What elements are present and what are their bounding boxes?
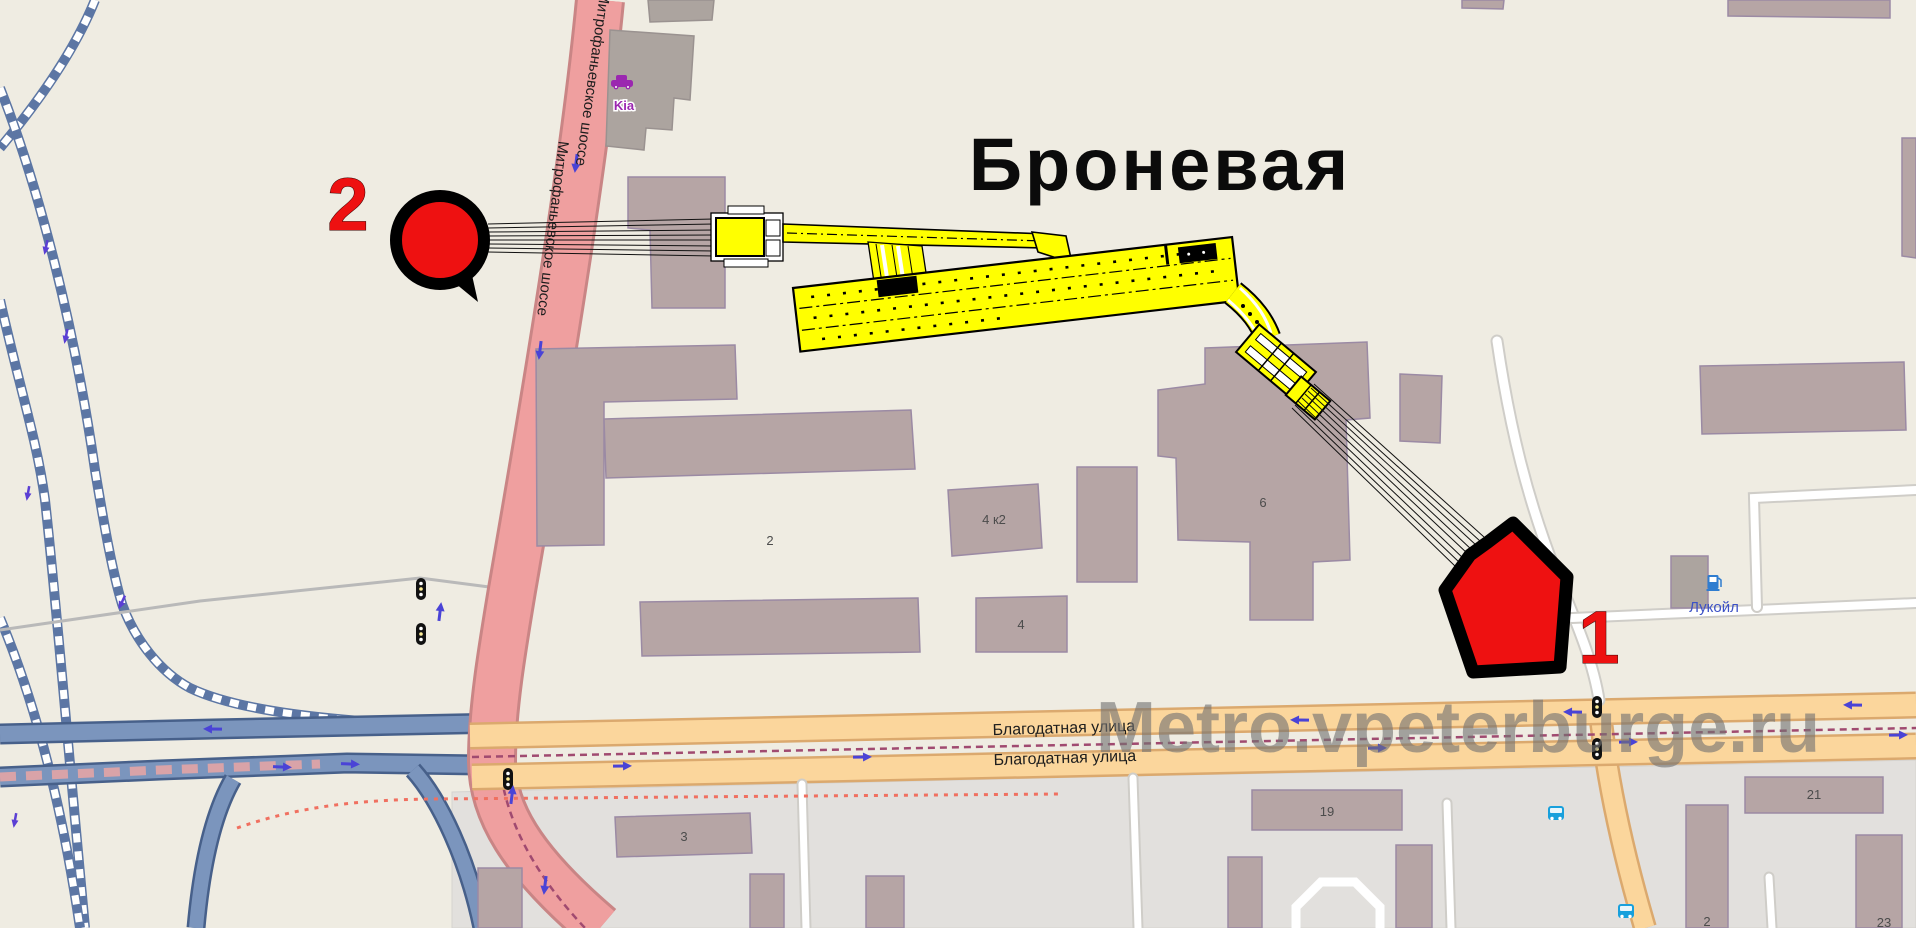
building bbox=[1700, 362, 1906, 434]
building bbox=[1462, 0, 1504, 9]
bus-stop-icon bbox=[1618, 904, 1634, 918]
building bbox=[750, 874, 784, 928]
building-number: 19 bbox=[1320, 804, 1334, 819]
building bbox=[1902, 138, 1916, 258]
building bbox=[1400, 374, 1442, 443]
map-canvas: Благодатная улица Благодатная улица Митр… bbox=[0, 0, 1916, 928]
marker-2-circle bbox=[396, 196, 484, 284]
station-vestibule bbox=[711, 206, 783, 267]
traffic-signal-icon bbox=[416, 578, 426, 600]
metro-station-map: Благодатная улица Благодатная улица Митр… bbox=[0, 0, 1916, 928]
car-dealer-label: Kia bbox=[614, 98, 635, 113]
marker-1-number: 1 bbox=[1578, 596, 1619, 679]
building bbox=[640, 598, 920, 656]
station-title: Броневая bbox=[969, 123, 1351, 206]
building-number: 23 bbox=[1877, 915, 1891, 928]
building bbox=[866, 876, 904, 928]
building-number: 4 к2 bbox=[982, 512, 1006, 527]
building-number: 4 bbox=[1017, 617, 1024, 632]
building-number: 6 bbox=[1259, 495, 1266, 510]
marker-2-number: 2 bbox=[327, 163, 368, 246]
fuel-station-label: Лукойл bbox=[1689, 599, 1739, 616]
building-2-south bbox=[1686, 805, 1728, 928]
traffic-signal-icon bbox=[416, 623, 426, 645]
building bbox=[1077, 467, 1137, 582]
building bbox=[1728, 0, 1890, 18]
building bbox=[648, 0, 714, 22]
building-2-bar bbox=[604, 410, 915, 478]
building-number: 21 bbox=[1807, 787, 1821, 802]
building bbox=[1228, 857, 1262, 928]
building bbox=[1396, 845, 1432, 928]
building-number: 2 bbox=[766, 533, 773, 548]
building bbox=[478, 868, 522, 928]
building-number: 3 bbox=[680, 829, 687, 844]
traffic-signal-icon bbox=[503, 768, 513, 790]
bus-stop-icon bbox=[1548, 806, 1564, 820]
watermark: Metro.vpeterburge.ru bbox=[1096, 688, 1820, 768]
building-number: 2 bbox=[1703, 914, 1710, 928]
bridge-road bbox=[0, 723, 505, 734]
